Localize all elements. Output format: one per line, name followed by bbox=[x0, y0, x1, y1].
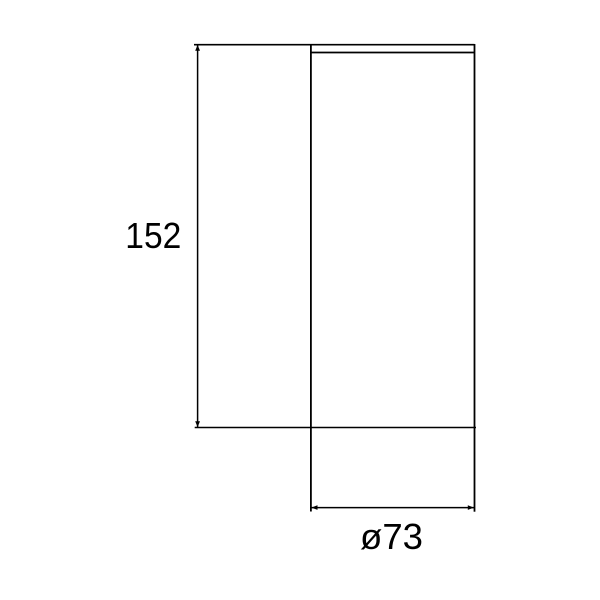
svg-text:152: 152 bbox=[125, 215, 181, 256]
svg-text:ø73: ø73 bbox=[360, 516, 423, 557]
